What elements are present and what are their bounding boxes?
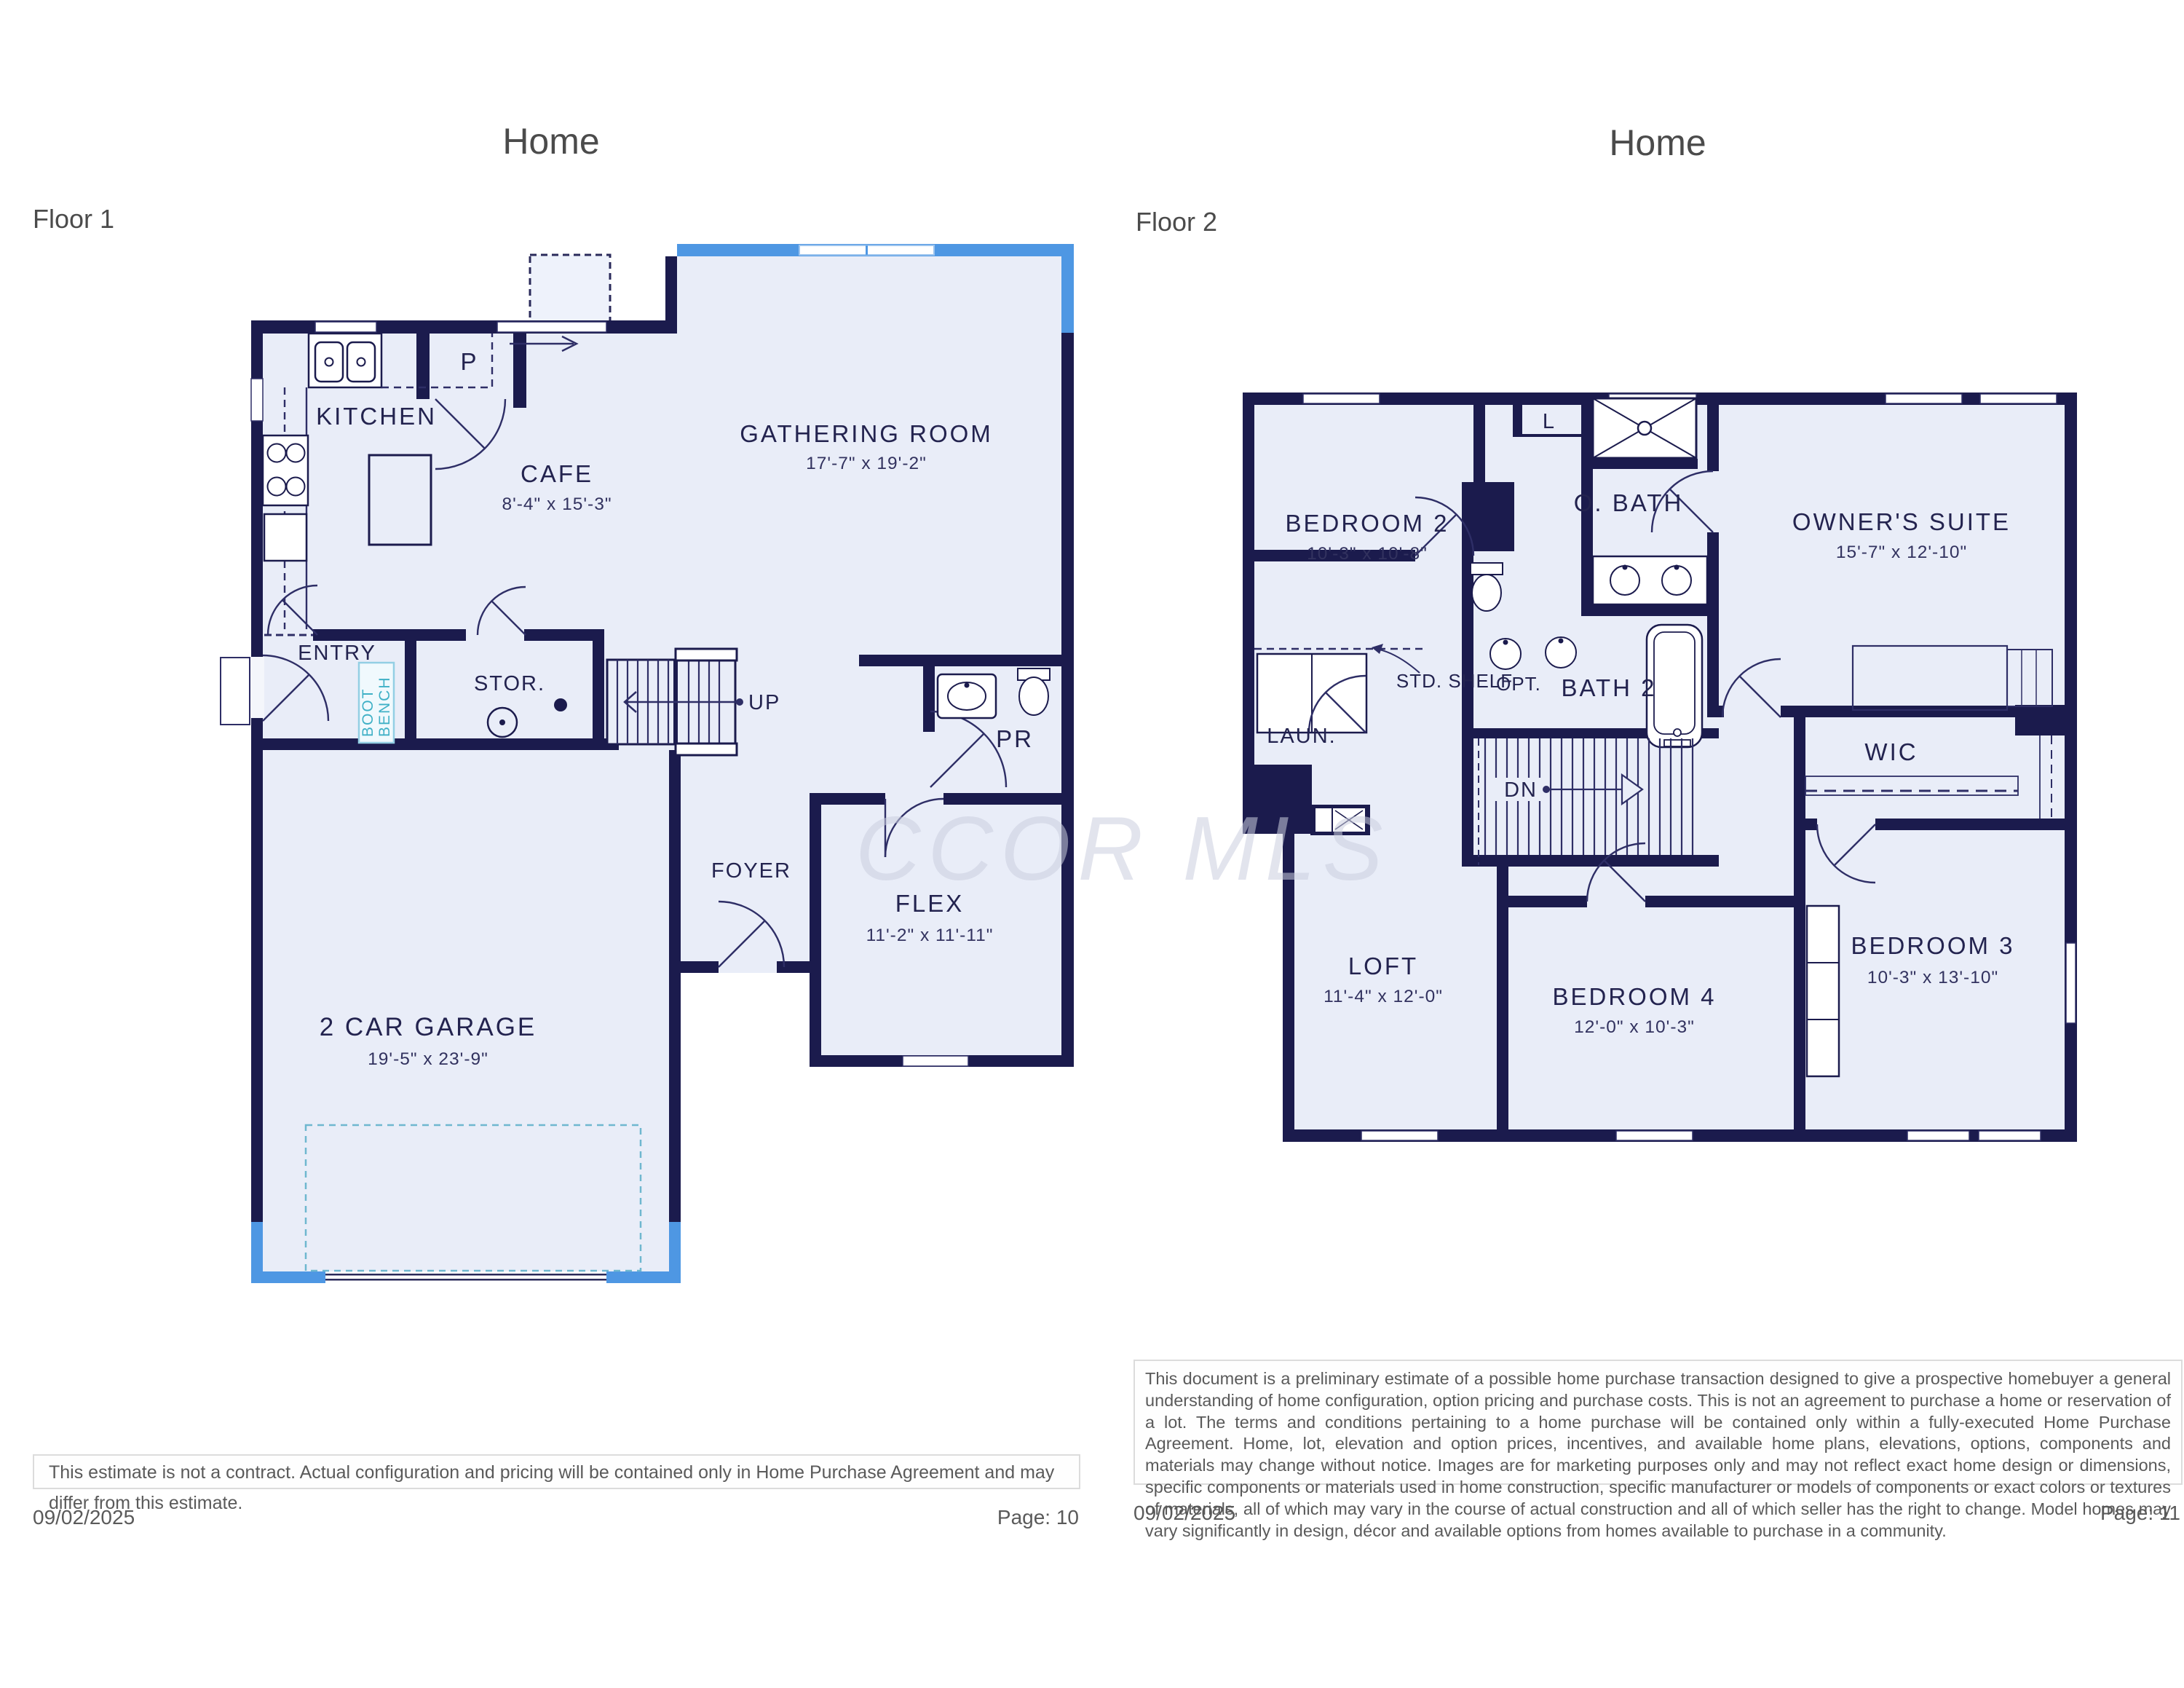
document-page: Home Home Floor 1 Floor 2 xyxy=(0,0,2184,1688)
opt-label: OPT. xyxy=(1496,673,1541,695)
floor-plan-1: BOOT BENCH xyxy=(221,244,1074,1283)
right-date: 09/02/2025 xyxy=(1133,1502,1235,1525)
entry-label: ENTRY xyxy=(298,642,376,665)
bedroom2-label: BEDROOM 2 xyxy=(1285,510,1449,537)
left-date: 09/02/2025 xyxy=(33,1506,135,1529)
wic-label: WIC xyxy=(1864,738,1918,765)
pantry-label: P xyxy=(460,348,478,375)
owners-suite-dims: 15'-7" x 12'-10" xyxy=(1836,543,1967,562)
owners-suite-label: OWNER'S SUITE xyxy=(1792,508,2011,535)
stairs-up-label: UP xyxy=(748,691,780,714)
foyer-label: FOYER xyxy=(711,859,791,883)
right-disclaimer-box: This document is a preliminary estimate … xyxy=(1133,1360,2183,1485)
gathering-room-label: GATHERING ROOM xyxy=(740,420,993,447)
bedroom4-label: BEDROOM 4 xyxy=(1552,983,1716,1010)
garage-door xyxy=(325,1271,606,1283)
kitchen-range xyxy=(263,435,308,561)
stairs-up xyxy=(607,649,743,755)
loft-dims: 11'-4" x 12'-0" xyxy=(1324,987,1443,1006)
optional-extension-dashed-box xyxy=(530,255,610,326)
flex-dims: 11'-2" x 11'-11" xyxy=(866,926,994,945)
bedroom3-label: BEDROOM 3 xyxy=(1851,932,2014,959)
cafe-label: CAFE xyxy=(521,460,593,487)
cafe-dims: 8'-4" x 15'-3" xyxy=(502,494,612,514)
gathering-room-dims: 17'-7" x 19'-2" xyxy=(806,454,927,473)
right-page-number: Page: 11 xyxy=(1962,1502,2180,1525)
shower xyxy=(1593,398,1696,458)
bedroom4-dims: 12'-0" x 10'-3" xyxy=(1574,1017,1695,1037)
stairs-down-label: DN xyxy=(1504,778,1538,802)
bath2-label: BATH 2 xyxy=(1561,674,1656,701)
std-shelf-label: STD. SHELF xyxy=(1396,670,1513,692)
linen-label: L xyxy=(1543,410,1556,433)
owners-bath-vanity xyxy=(1593,556,1707,604)
powder-room-fixtures xyxy=(938,669,1050,718)
bedroom2-dims: 10'-3" x 10'-8" xyxy=(1307,544,1428,564)
garage-dims: 19'-5" x 23'-9" xyxy=(368,1049,488,1069)
bedroom3-closet xyxy=(1807,906,1839,1076)
gathering-room-window xyxy=(799,245,934,255)
kitchen-sink xyxy=(309,334,381,387)
kitchen-label: KITCHEN xyxy=(316,403,437,430)
left-disclaimer-box: This estimate is not a contract. Actual … xyxy=(33,1454,1080,1489)
boot-bench-label-2: BENCH xyxy=(376,676,393,737)
mls-watermark: CCOR MLS xyxy=(855,797,1365,901)
floor1-room-fills xyxy=(251,244,1074,1283)
owners-bath-label: O. BATH xyxy=(1574,489,1684,516)
garage-label: 2 CAR GARAGE xyxy=(320,1013,537,1041)
left-page-number: Page: 10 xyxy=(860,1506,1079,1529)
boot-bench-label-1: BOOT xyxy=(360,687,376,737)
loft-label: LOFT xyxy=(1348,953,1418,979)
bedroom3-dims: 10'-3" x 13'-10" xyxy=(1867,968,1998,987)
powder-room-label: PR xyxy=(996,725,1034,752)
kitchen-island xyxy=(369,455,431,545)
laundry-label: LAUN. xyxy=(1267,725,1336,748)
boot-bench: BOOT BENCH xyxy=(359,663,394,743)
storage-label: STOR. xyxy=(474,672,545,695)
floor-plan-2: BEDROOM 2 10'-3" x 10'-8" L O. BATH OWNE… xyxy=(1243,393,2077,1142)
front-stoop xyxy=(221,658,250,725)
wic-door-opening xyxy=(1724,706,1781,717)
